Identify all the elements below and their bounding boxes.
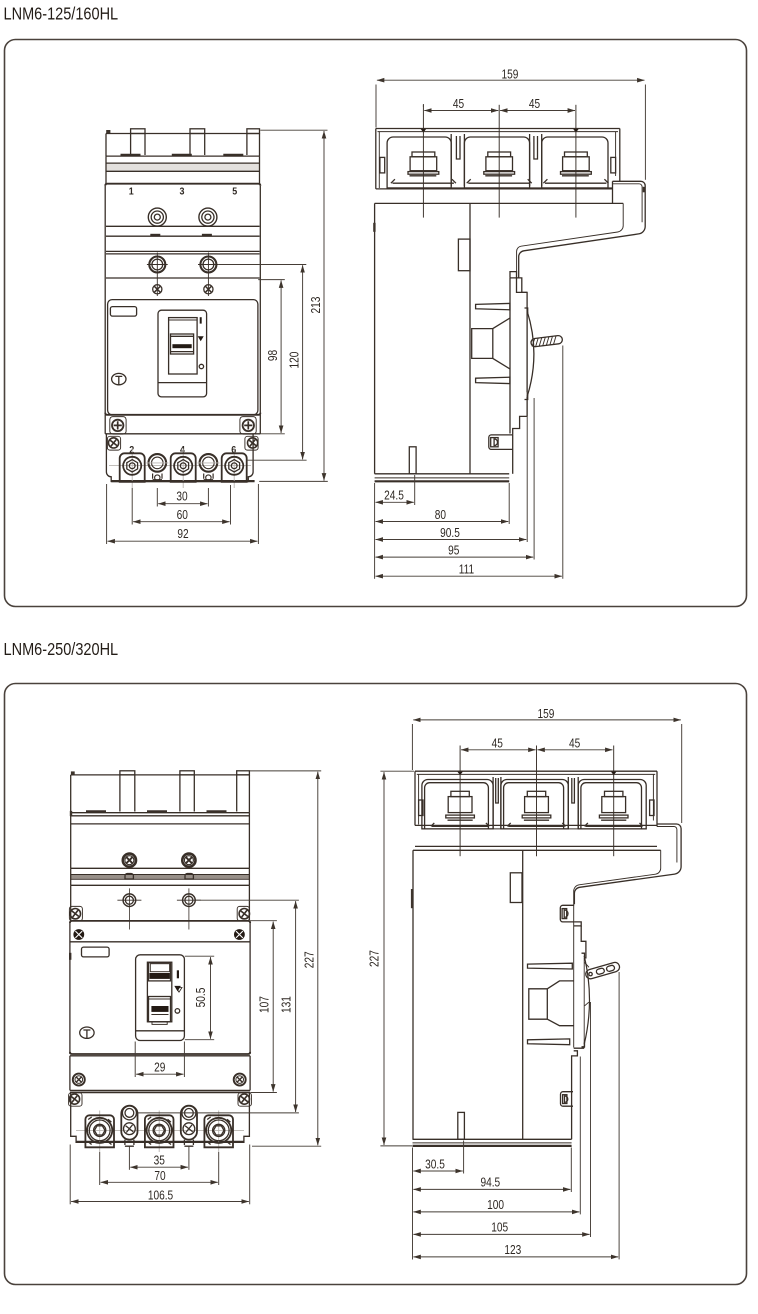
svg-text:45: 45 [529, 97, 540, 111]
svg-text:1: 1 [129, 186, 134, 198]
svg-text:35: 35 [154, 1153, 165, 1167]
svg-text:29: 29 [154, 1060, 165, 1074]
svg-text:70: 70 [154, 1169, 166, 1183]
svg-text:3: 3 [180, 186, 185, 198]
svg-text:213: 213 [309, 297, 323, 314]
svg-text:LNM6-250/320HL: LNM6-250/320HL [4, 640, 119, 660]
svg-text:LNM6-125/160HL: LNM6-125/160HL [4, 4, 119, 24]
svg-text:107: 107 [258, 996, 272, 1013]
svg-text:106.5: 106.5 [148, 1188, 173, 1202]
svg-text:95: 95 [448, 543, 459, 557]
svg-text:30.5: 30.5 [425, 1157, 445, 1171]
svg-text:159: 159 [538, 707, 555, 721]
svg-text:227: 227 [367, 950, 381, 967]
svg-text:45: 45 [569, 736, 580, 750]
svg-text:45: 45 [492, 736, 503, 750]
svg-text:98: 98 [266, 350, 280, 361]
svg-text:4: 4 [180, 444, 185, 456]
svg-text:90.5: 90.5 [440, 526, 460, 540]
svg-text:120: 120 [287, 351, 301, 368]
svg-text:159: 159 [502, 67, 519, 81]
svg-text:94.5: 94.5 [480, 1175, 500, 1189]
svg-text:105: 105 [491, 1220, 508, 1234]
svg-text:45: 45 [453, 97, 464, 111]
svg-text:60: 60 [177, 508, 189, 522]
svg-text:227: 227 [302, 951, 316, 968]
svg-text:50.5: 50.5 [194, 988, 208, 1008]
svg-text:100: 100 [487, 1198, 504, 1212]
svg-text:123: 123 [504, 1243, 521, 1257]
svg-text:131: 131 [279, 996, 293, 1013]
svg-text:80: 80 [435, 508, 447, 522]
svg-text:30: 30 [176, 490, 188, 504]
svg-text:24.5: 24.5 [384, 489, 404, 503]
svg-text:92: 92 [177, 527, 188, 541]
svg-text:5: 5 [232, 186, 237, 198]
svg-text:111: 111 [459, 563, 474, 577]
